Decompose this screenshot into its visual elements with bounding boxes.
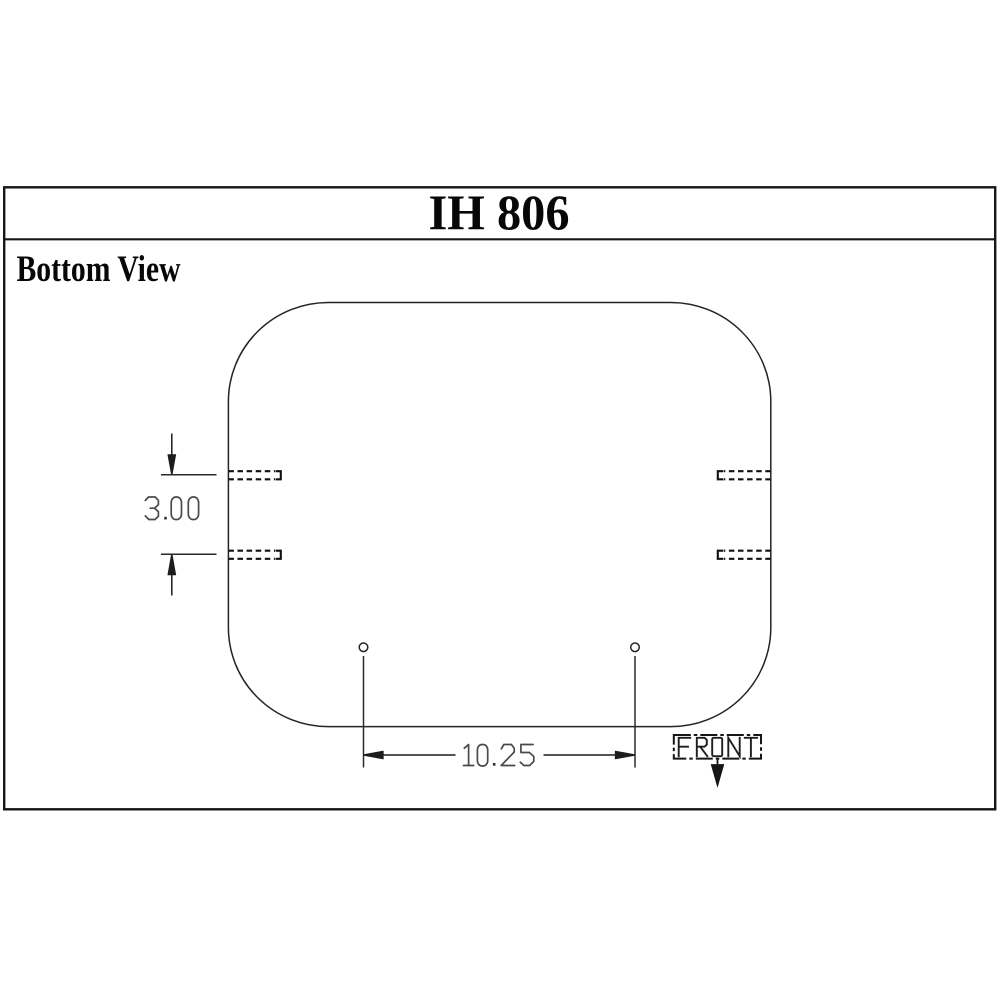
svg-text:Bottom View: Bottom View: [17, 249, 181, 290]
svg-text:IH 806: IH 806: [429, 184, 570, 240]
